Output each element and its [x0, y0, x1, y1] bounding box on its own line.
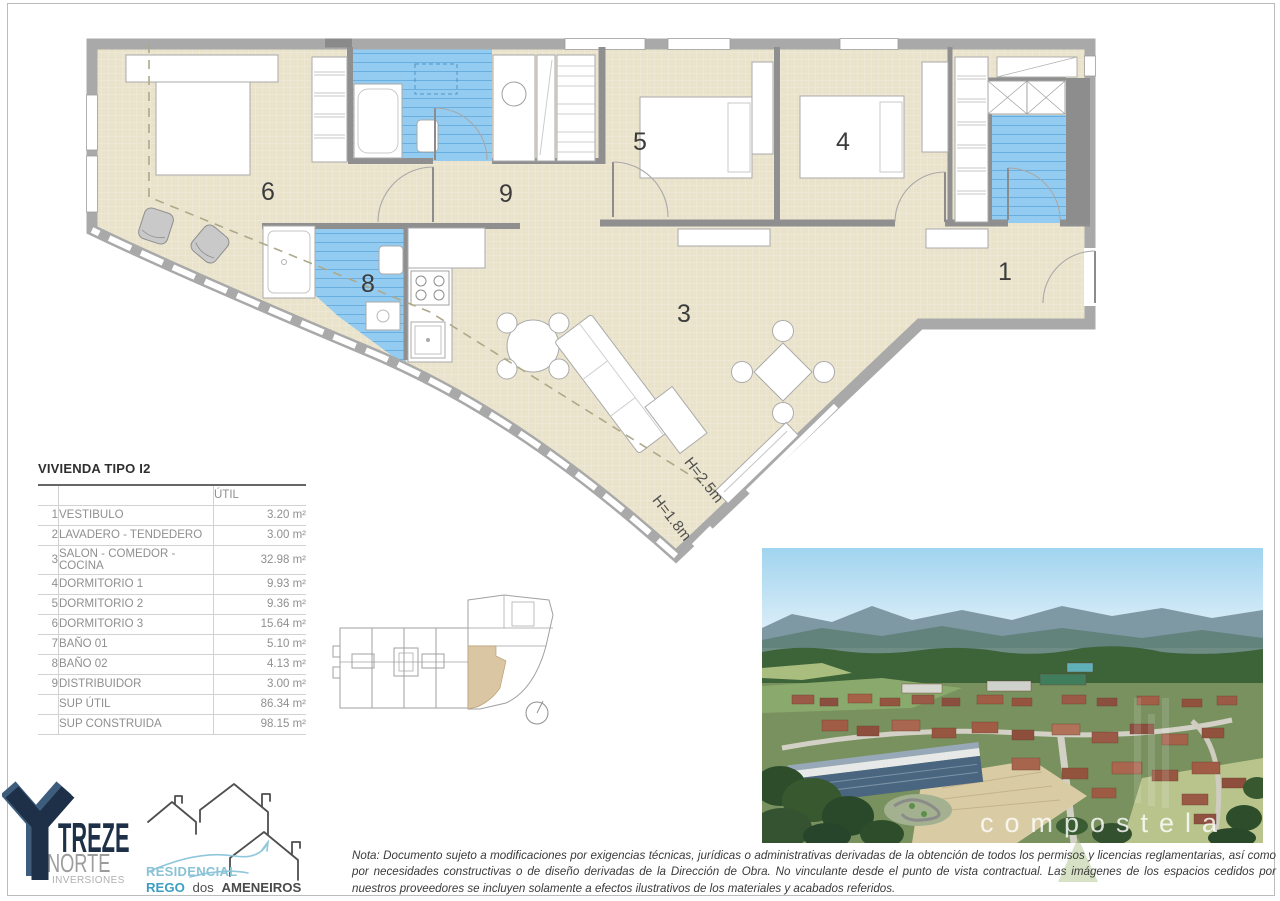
room-label-6: 6	[261, 178, 275, 206]
building-key-plan	[330, 590, 560, 740]
cell-name: DORMITORIO 2	[59, 594, 214, 614]
cell-value: 5.10 m²	[214, 634, 307, 654]
cell-name: SUP CONSTRUIDA	[59, 714, 214, 734]
cell-num: 1	[38, 505, 59, 525]
bathtub	[354, 84, 402, 158]
room-label-5: 5	[633, 128, 647, 156]
cell-num: 6	[38, 614, 59, 634]
cell-name: LAVADERO - TENDEDERO	[59, 525, 214, 545]
table-row: 9 DISTRIBUIDOR 3.00 m²	[38, 674, 306, 694]
cell-num: 2	[38, 525, 59, 545]
table-row: 1 VESTIBULO 3.20 m²	[38, 505, 306, 525]
room-label-8: 8	[361, 270, 375, 298]
room-label-1: 1	[998, 258, 1012, 286]
area-table: VIVIENDA TIPO I2 ÚTIL 1 VESTIBULO 3.20 m…	[38, 461, 306, 735]
residencial-logo: RESIDENCIAL REGO dos AMENEIROS	[142, 776, 312, 898]
aerial-photo: compostela	[762, 548, 1263, 843]
legal-note: Nota: Documento sujeto a modificaciones …	[352, 848, 1276, 897]
cell-value: 32.98 m²	[214, 545, 307, 574]
hall-cabinet	[926, 229, 988, 248]
vanity-2	[366, 302, 400, 330]
north-indicator	[526, 701, 548, 724]
cell-num	[38, 694, 59, 714]
cell-value: 9.36 m²	[214, 594, 307, 614]
cell-value: 15.64 m²	[214, 614, 307, 634]
col-header-util: ÚTIL	[214, 485, 307, 505]
room-label-9: 9	[499, 180, 513, 208]
cell-value: 3.20 m²	[214, 505, 307, 525]
treze-norte-logo: TREZE NORTE INVERSIONES	[2, 780, 137, 892]
table-total-row: SUP CONSTRUIDA 98.15 m²	[38, 714, 306, 734]
cell-num: 7	[38, 634, 59, 654]
cell-value: 9.93 m²	[214, 574, 307, 594]
cell-num	[38, 485, 59, 505]
rego-text: REGO	[146, 880, 185, 895]
cell-value: 86.34 m²	[214, 694, 307, 714]
playground	[884, 794, 952, 826]
table-row: 2 LAVADERO - TENDEDERO 3.00 m²	[38, 525, 306, 545]
cell-name: BAÑO 02	[59, 654, 214, 674]
cell-num: 5	[38, 594, 59, 614]
ameneiros-text: AMENEIROS	[221, 880, 301, 895]
highlighted-unit	[468, 646, 506, 709]
bed-room4	[800, 96, 904, 178]
cell-value: 3.00 m²	[214, 674, 307, 694]
table-row: 3 SALON - COMEDOR - COCINA 32.98 m²	[38, 545, 306, 574]
document-page: 1 3 4 5 6 8 9 H=2.5m H=1.8m VIVIENDA TIP…	[0, 0, 1280, 901]
photo-watermark: compostela	[980, 808, 1228, 838]
toilet-2	[379, 246, 403, 274]
shaft-wall	[1066, 78, 1090, 224]
table-row: 4 DORMITORIO 1 9.93 m²	[38, 574, 306, 594]
table-total-row: SUP ÚTIL 86.34 m²	[38, 694, 306, 714]
unit-title: VIVIENDA TIPO I2	[38, 461, 306, 476]
cell-name: DISTRIBUIDOR	[59, 674, 214, 694]
hall-closet	[955, 57, 988, 222]
cell-name: DORMITORIO 3	[59, 614, 214, 634]
cell-name: SALON - COMEDOR - COCINA	[59, 545, 214, 574]
cell-name	[59, 485, 214, 505]
cell-num: 3	[38, 545, 59, 574]
svg-text:REGO dos AMENEIROS: REGO dos AMENEIROS	[146, 880, 302, 895]
table-row: 5 DORMITORIO 2 9.36 m²	[38, 594, 306, 614]
cell-num: 9	[38, 674, 59, 694]
table-header-row: ÚTIL	[38, 485, 306, 505]
shelving-unit	[557, 55, 595, 161]
cell-value: 3.00 m²	[214, 525, 307, 545]
bed-room5	[640, 97, 752, 178]
cell-name: DORMITORIO 1	[59, 574, 214, 594]
treze-inversiones-text: INVERSIONES	[52, 875, 125, 886]
room-label-3: 3	[677, 300, 691, 328]
cell-name: SUP ÚTIL	[59, 694, 214, 714]
table-row: 7 BAÑO 01 5.10 m²	[38, 634, 306, 654]
dos-text: dos	[193, 880, 215, 895]
cell-num: 4	[38, 574, 59, 594]
cell-num	[38, 714, 59, 734]
laundry-machines	[988, 81, 1065, 114]
treze-norte-text: NORTE	[47, 849, 110, 878]
photo-logo-watermark	[1134, 698, 1169, 808]
cell-value: 98.15 m²	[214, 714, 307, 734]
vent-slot	[325, 39, 352, 48]
room-label-4: 4	[836, 128, 850, 156]
table-row: 8 BAÑO 02 4.13 m²	[38, 654, 306, 674]
wardrobe	[312, 57, 347, 162]
residencial-text: RESIDENCIAL	[146, 864, 237, 879]
table-row: 6 DORMITORIO 3 15.64 m²	[38, 614, 306, 634]
cell-name: VESTIBULO	[59, 505, 214, 525]
sideboard	[678, 229, 770, 246]
cell-name: BAÑO 01	[59, 634, 214, 654]
cell-value: 4.13 m²	[214, 654, 307, 674]
cell-num: 8	[38, 654, 59, 674]
vanity-unit	[493, 55, 535, 161]
